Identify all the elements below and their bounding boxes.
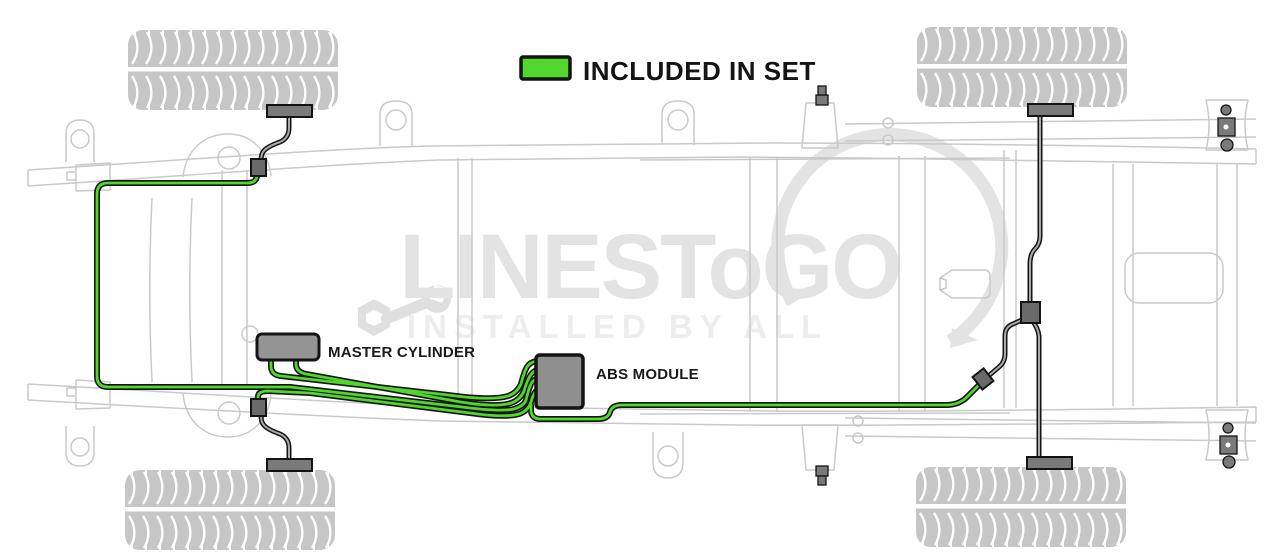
connector-front-left-upper xyxy=(251,159,266,176)
leaf-spring-bottom xyxy=(845,418,1256,441)
watermark: LINESToGO INSTALLED BY ALL xyxy=(358,135,1002,348)
abs-module-label: ABS MODULE xyxy=(596,366,699,383)
legend-label: INCLUDED IN SET xyxy=(583,56,816,86)
master-cylinder-label: MASTER CYLINDER xyxy=(328,344,475,361)
caliper-bracket-rear-right xyxy=(1027,457,1072,469)
legend: INCLUDED IN SET xyxy=(521,56,816,86)
brake-line-diagram-page: LINESToGO INSTALLED BY ALL xyxy=(0,0,1280,558)
shackle-hardware-holes xyxy=(1224,125,1231,448)
body-mount-tab xyxy=(380,101,412,146)
body-mount-tab xyxy=(66,120,94,162)
tire-rear-right xyxy=(916,467,1126,547)
caliper-bracket-front-left xyxy=(267,105,312,117)
fuel-tank xyxy=(1125,253,1223,303)
body-mount-tab xyxy=(662,101,694,145)
watermark-brand: LINESToGO xyxy=(399,216,901,318)
tire-rear-left xyxy=(917,27,1127,107)
watermark-tagline: INSTALLED BY ALL xyxy=(407,308,828,345)
connector-rear-tee xyxy=(1021,302,1040,323)
abs-module xyxy=(536,355,583,408)
caliper-bracket-rear-left xyxy=(1028,104,1073,116)
frame-rail-top xyxy=(28,143,1256,186)
rear-axle xyxy=(1004,150,1016,408)
crossmember xyxy=(222,170,247,387)
connector-front-left-lower xyxy=(251,399,266,416)
master-cylinder xyxy=(257,334,319,360)
spring-shackle xyxy=(802,103,838,148)
chassis-diagram: LINESToGO INSTALLED BY ALL xyxy=(0,0,1280,558)
legend-swatch xyxy=(521,57,570,79)
component-labels: MASTER CYLINDER ABS MODULE xyxy=(328,344,699,383)
tire-front-left xyxy=(128,30,338,110)
frame-panel xyxy=(150,198,192,382)
spring-shackle xyxy=(802,425,838,470)
caliper-bracket-front-right xyxy=(267,459,312,471)
rear-crossmember xyxy=(1113,164,1237,406)
body-mount-tab xyxy=(66,426,94,466)
differential xyxy=(940,270,990,298)
tire-front-right xyxy=(125,470,335,550)
